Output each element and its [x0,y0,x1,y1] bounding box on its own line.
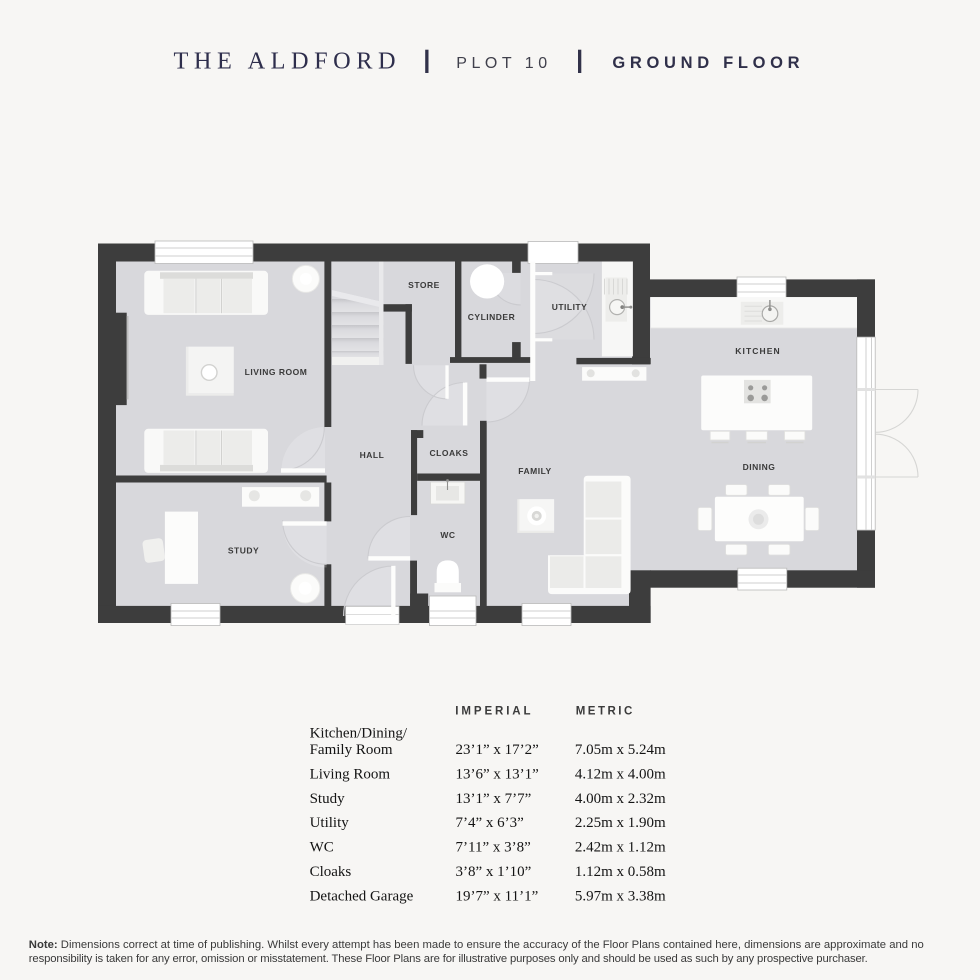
svg-text:METRIC: METRIC [576,706,635,718]
svg-text:4.00m x 2.32m: 4.00m x 2.32m [575,791,666,807]
svg-text:CYLINDER: CYLINDER [468,312,515,322]
svg-text:Kitchen/Dining/: Kitchen/Dining/ [310,726,408,742]
svg-text:3’8” x 1’10”: 3’8” x 1’10” [456,864,532,880]
svg-text:DINING: DINING [743,462,776,472]
svg-text:WC: WC [440,530,455,540]
svg-text:FAMILY: FAMILY [518,466,551,476]
svg-text:KITCHEN: KITCHEN [735,346,780,356]
svg-text:GROUND FLOOR: GROUND FLOOR [612,54,799,72]
svg-text:IMPERIAL: IMPERIAL [455,706,533,718]
svg-text:STORE: STORE [408,280,440,290]
svg-text:7.05m x 5.24m: 7.05m x 5.24m [575,742,666,758]
svg-text:Detached Garage: Detached Garage [310,888,414,904]
svg-text:23’1” x 17’2”: 23’1” x 17’2” [456,742,539,758]
svg-text:1.12m x 0.58m: 1.12m x 0.58m [575,864,666,880]
svg-text:THE ALDFORD: THE ALDFORD [174,47,396,74]
svg-text:responsibility is taken for an: responsibility is taken for any error, o… [29,953,868,965]
svg-text:2.25m x 1.90m: 2.25m x 1.90m [575,815,666,831]
svg-text:WC: WC [310,840,334,856]
svg-text:7’4” x 6’3”: 7’4” x 6’3” [456,815,524,831]
svg-text:HALL: HALL [360,450,385,460]
svg-text:Living Room: Living Room [310,766,391,782]
svg-text:19’7” x 11’1”: 19’7” x 11’1” [456,888,539,904]
svg-text:Utility: Utility [310,815,350,831]
svg-text:7’11” x 3’8”: 7’11” x 3’8” [456,840,531,856]
svg-text:13’1” x 7’7”: 13’1” x 7’7” [456,791,532,807]
svg-text:5.97m x 3.38m: 5.97m x 3.38m [575,888,666,904]
svg-text:Study: Study [310,791,346,807]
svg-text:CLOAKS: CLOAKS [430,448,469,458]
svg-text:UTILITY: UTILITY [552,302,588,312]
svg-text:Cloaks: Cloaks [310,864,352,880]
svg-text:Family Room: Family Room [310,742,393,758]
svg-text:4.12m x 4.00m: 4.12m x 4.00m [575,766,666,782]
svg-text:Note: Dimensions correct at ti: Note: Dimensions correct at time of publ… [29,939,924,951]
svg-text:2.42m x 1.12m: 2.42m x 1.12m [575,840,666,856]
svg-text:LIVING ROOM: LIVING ROOM [245,367,308,377]
svg-text:STUDY: STUDY [228,545,259,555]
svg-text:13’6” x 13’1”: 13’6” x 13’1” [456,766,539,782]
